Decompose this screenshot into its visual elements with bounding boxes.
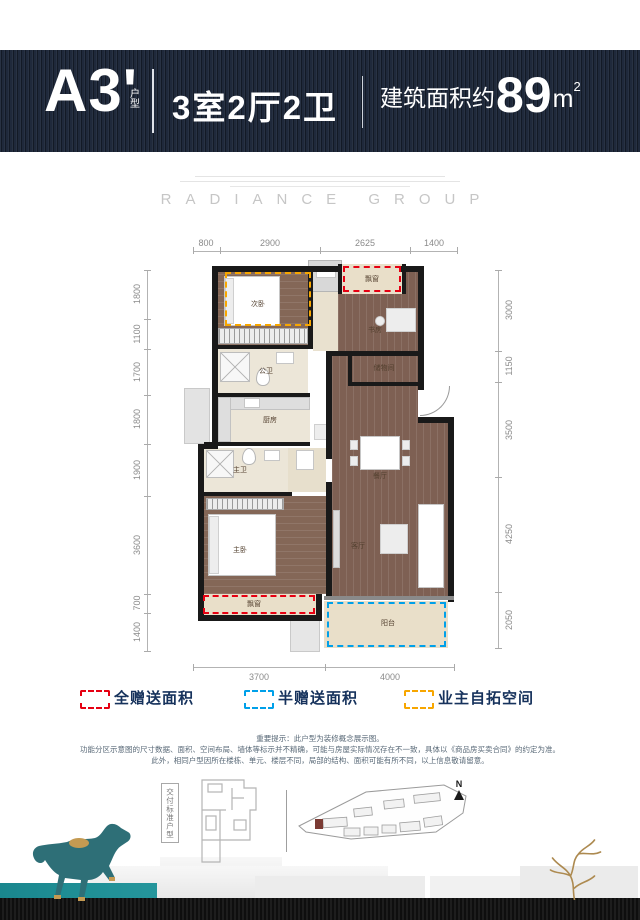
- north-arrow-icon: [454, 790, 464, 800]
- fine-print-line: [195, 176, 445, 177]
- kitchen-counter-left: [218, 397, 231, 442]
- sink-public-bath: [276, 352, 294, 364]
- room-label-public-bath: 公卫: [259, 366, 273, 376]
- dim-label: 2900: [260, 238, 280, 248]
- dim-tick: [454, 664, 455, 671]
- room-label-balcony: 阳台: [381, 618, 395, 628]
- room-label-living: 客厅: [351, 541, 365, 551]
- dim-label: 1900: [132, 460, 142, 480]
- dim-label: 1700: [132, 362, 142, 382]
- dim-label: 1150: [504, 356, 514, 375]
- dining-table: [360, 436, 400, 470]
- dim-tick: [495, 270, 502, 271]
- dim-tick: [144, 444, 151, 445]
- header-band: A3' 户型 3室2厅2卫 建筑面积约 89 m 2: [0, 50, 640, 152]
- disclaimer: 重要提示：此户型为装修概念展示图。 功能分区示意图的尺寸数据、面积、空间布局、墙…: [0, 733, 640, 766]
- dim-tick: [144, 594, 151, 595]
- dim-tick: [144, 270, 151, 271]
- wall: [218, 345, 313, 349]
- unit-code: A3': [44, 56, 138, 125]
- dim-tick: [193, 664, 194, 671]
- desk-study: [386, 308, 416, 332]
- footer-divider: [286, 790, 287, 852]
- dim-tick: [495, 648, 502, 649]
- dim-label: 4000: [380, 672, 400, 682]
- room-label-master-bedroom: 主卧: [233, 545, 247, 555]
- dining-chair: [350, 440, 358, 450]
- dim-tick: [144, 651, 151, 652]
- room-label-bedroom2: 次卧: [251, 299, 265, 309]
- legend-swatch-owner-expand: [404, 690, 434, 709]
- wall: [418, 266, 424, 355]
- dim-label: 3700: [249, 672, 269, 682]
- sofa: [418, 504, 444, 588]
- dim-tick: [325, 664, 326, 671]
- room-label-dining: 餐厅: [373, 471, 387, 481]
- wardrobe-master-bedroom: [206, 498, 284, 510]
- wall: [198, 615, 322, 621]
- wall: [204, 492, 292, 496]
- dining-chair: [402, 440, 410, 450]
- equipment-platform-bottom: [290, 618, 320, 652]
- equipment-platform-left: [184, 388, 210, 444]
- area-group: 建筑面积约 89 m 2: [380, 70, 581, 120]
- dim-line-top: [193, 251, 458, 252]
- dim-tick: [320, 247, 321, 254]
- dim-tick: [220, 247, 221, 254]
- dim-label: 1800: [132, 284, 142, 304]
- wardrobe-bedroom2: [218, 328, 308, 344]
- dim-tick: [495, 592, 502, 593]
- washing-machine: [296, 450, 314, 470]
- bed-pillow: [209, 516, 219, 574]
- room-label-study: 书房: [368, 325, 382, 335]
- dim-tick: [144, 613, 151, 614]
- dim-label: 1400: [132, 622, 142, 642]
- wall: [212, 266, 218, 448]
- wall: [448, 417, 454, 602]
- dim-tick: [193, 247, 194, 254]
- floor-plan: 次卧 飘窗 书房 公卫 储物间 厨房 主卫 餐厅 主卧 客厅 飘窗 阳台: [190, 258, 464, 658]
- dim-tick: [457, 247, 458, 254]
- disclaimer-line: 功能分区示意图的尺寸数据、面积、空间布局、墙体等标示并不精确，可能与房屋实际情况…: [0, 744, 640, 755]
- brand-name: RADIANCE GROUP: [0, 191, 640, 208]
- wall: [332, 351, 424, 356]
- dim-tick: [144, 395, 151, 396]
- dim-label: 1800: [132, 409, 142, 429]
- dim-label: 1100: [132, 324, 142, 343]
- room-label-storage: 储物间: [374, 363, 395, 373]
- dim-label: 3000: [504, 300, 514, 320]
- dim-tick: [495, 477, 502, 478]
- dim-label: 3600: [132, 535, 142, 555]
- room-label-bay-window-bottom: 飘窗: [247, 599, 261, 609]
- shower-master-bath: [206, 450, 234, 478]
- dim-label: 700: [132, 595, 142, 610]
- header-divider-2: [362, 76, 363, 128]
- disclaimer-line: 重要提示：此户型为装修概念展示图。: [0, 733, 640, 744]
- toilet-master-bath: [242, 448, 256, 465]
- dining-chair: [402, 456, 410, 466]
- entry-door-arc: [420, 386, 450, 416]
- dim-label: 1400: [424, 238, 444, 248]
- poster-page: A3' 户型 3室2厅2卫 建筑面积约 89 m 2 RADIANCE GROU…: [0, 0, 640, 920]
- dim-tick: [495, 351, 502, 352]
- dim-tick: [144, 496, 151, 497]
- dim-tick: [144, 319, 151, 320]
- room-label-bay-window-top: 飘窗: [365, 274, 379, 284]
- legend-swatch-half-gift: [244, 690, 274, 709]
- wall: [204, 442, 310, 446]
- wall: [348, 355, 352, 383]
- dim-tick: [495, 382, 502, 383]
- room-label-kitchen: 厨房: [263, 415, 277, 425]
- area-exponent: 2: [573, 79, 580, 94]
- coffee-table: [380, 524, 408, 554]
- dim-label: 2050: [504, 610, 514, 630]
- wall: [198, 444, 204, 620]
- tree-branch-icon: [536, 836, 612, 900]
- wall: [316, 594, 322, 621]
- disclaimer-line: 此外，相同户型因所在楼栋、单元、楼层不同，局部的结构、面积可能有所不同，以上信息…: [0, 755, 640, 766]
- area-value: 89: [496, 70, 552, 120]
- balcony-door-track: [324, 596, 454, 600]
- header-divider-1: [152, 69, 154, 133]
- legend-swatch-full-gift: [80, 690, 110, 709]
- wall: [326, 351, 332, 459]
- fine-print-line: [230, 186, 410, 187]
- dining-chair: [350, 456, 358, 466]
- overlay-owner-expand: [225, 272, 311, 326]
- dim-tick: [144, 349, 151, 350]
- dim-label: 2625: [355, 238, 375, 248]
- area-prefix: 建筑面积约: [380, 79, 495, 113]
- legend-label-full-gift: 全赠送面积: [114, 687, 194, 708]
- unit-type-label: 户型: [130, 90, 141, 110]
- north-label: N: [452, 779, 466, 789]
- skyline-block: [255, 876, 425, 900]
- dim-label: 3500: [504, 420, 514, 440]
- wall: [338, 264, 342, 294]
- dim-label: 4250: [504, 524, 514, 544]
- stove: [244, 398, 260, 408]
- shower-public-bath: [220, 352, 250, 382]
- wall: [402, 264, 406, 294]
- wall: [348, 382, 424, 386]
- site-plan: [296, 782, 476, 850]
- tv-cabinet: [333, 510, 340, 568]
- wall: [218, 393, 310, 397]
- legend-label-half-gift: 半赠送面积: [278, 687, 358, 708]
- highlighted-building: [315, 819, 323, 829]
- standard-unit-thumbnail: [186, 776, 268, 868]
- sink-master-bath: [264, 450, 280, 461]
- room-label-master-bath: 主卫: [233, 465, 247, 475]
- fine-print-line: [180, 181, 460, 182]
- area-unit: m: [553, 85, 574, 114]
- dim-line-bottom: [193, 667, 455, 668]
- horse-statue-icon: [28, 820, 140, 902]
- dim-label: 800: [198, 238, 213, 248]
- wall: [326, 482, 332, 596]
- dim-tick: [410, 247, 411, 254]
- kitchen-counter-top: [218, 397, 310, 410]
- rooms-summary: 3室2厅2卫: [172, 81, 338, 129]
- legend-label-owner-expand: 业主自拓空间: [438, 687, 534, 708]
- standard-unit-label: 交付标准户型: [165, 788, 176, 839]
